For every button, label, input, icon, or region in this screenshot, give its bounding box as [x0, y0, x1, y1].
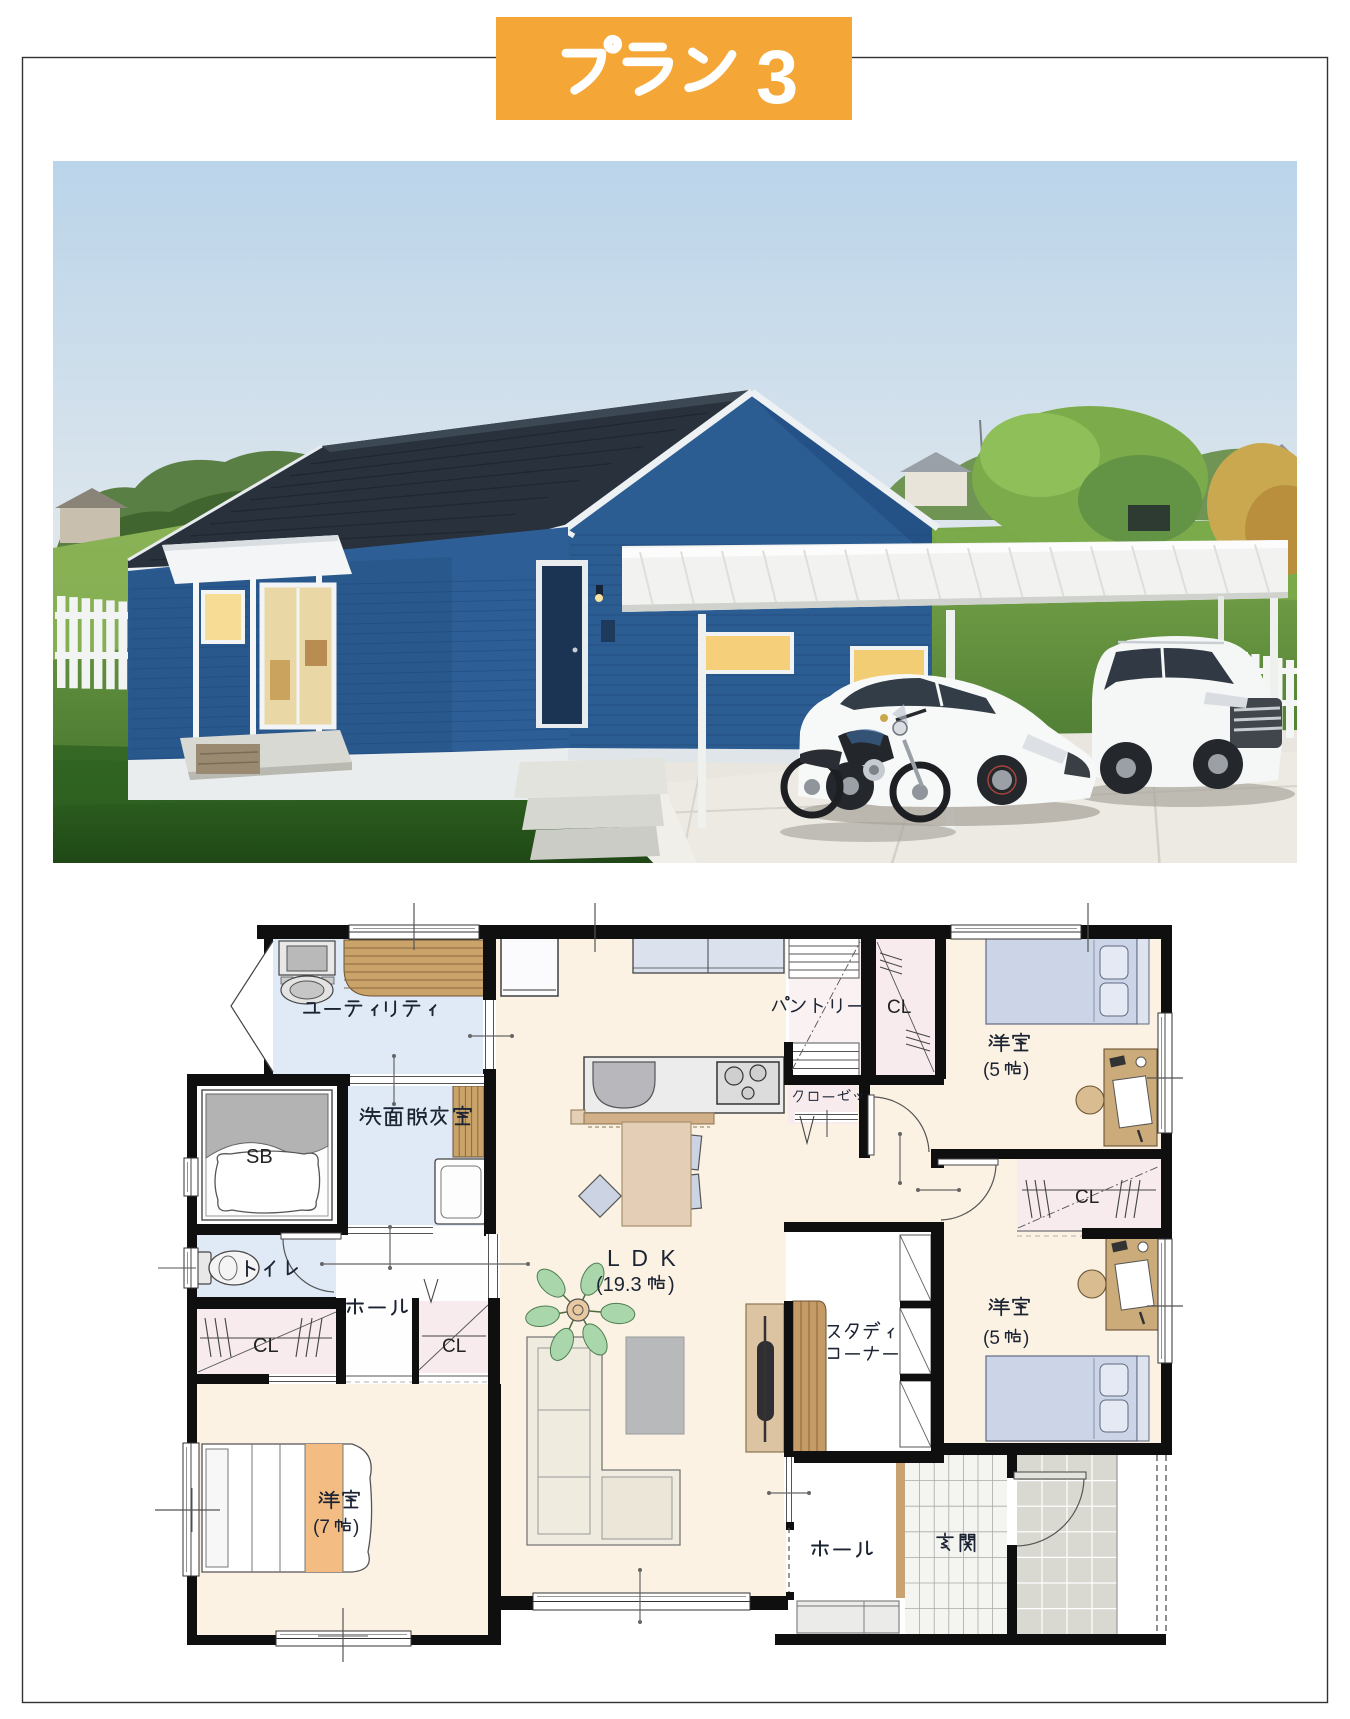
svg-text:(7: (7 [313, 1517, 330, 1538]
svg-text:(5: (5 [983, 1060, 1000, 1081]
svg-text:(5: (5 [983, 1328, 1000, 1349]
svg-text:): ) [353, 1517, 359, 1538]
svg-text:): ) [668, 1274, 675, 1296]
svg-text:): ) [1023, 1060, 1029, 1081]
svg-text:CL: CL [1075, 1187, 1099, 1208]
svg-text:CL: CL [442, 1336, 466, 1357]
svg-text:CL: CL [887, 997, 911, 1018]
svg-text:CL: CL [253, 1335, 279, 1357]
svg-text:L D K: L D K [607, 1245, 679, 1271]
svg-text:SB: SB [246, 1146, 273, 1168]
svg-text:): ) [1023, 1328, 1029, 1349]
svg-text:(19.3: (19.3 [596, 1274, 642, 1296]
svg-text:3: 3 [756, 35, 798, 120]
